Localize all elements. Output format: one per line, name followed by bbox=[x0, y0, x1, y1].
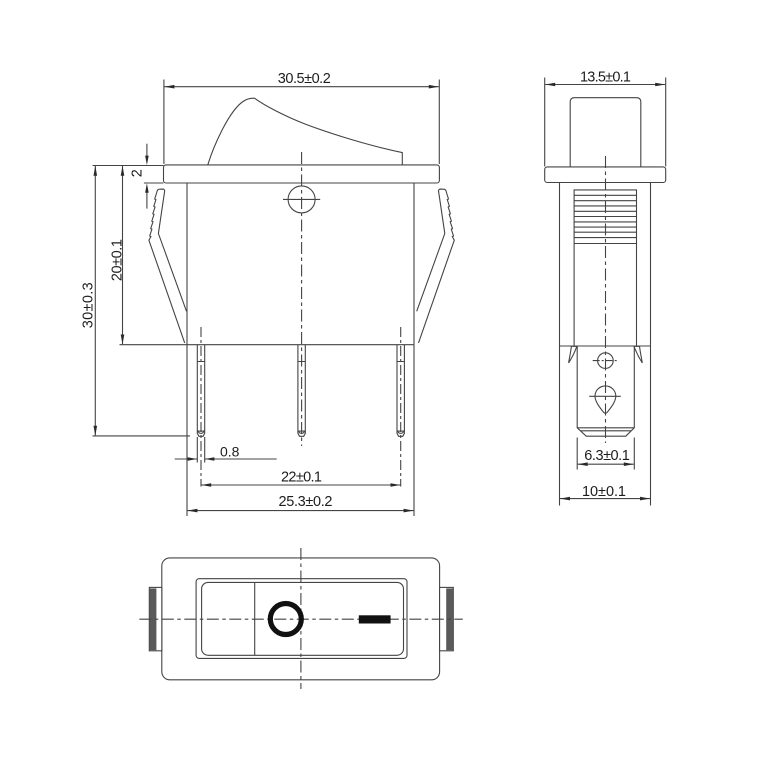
svg-text:6.3±0.1: 6.3±0.1 bbox=[584, 448, 630, 464]
svg-text:2: 2 bbox=[129, 169, 145, 177]
svg-text:25.3±0.2: 25.3±0.2 bbox=[279, 494, 333, 510]
svg-text:30.5±0.2: 30.5±0.2 bbox=[278, 71, 331, 87]
svg-text:20±0.1: 20±0.1 bbox=[110, 239, 126, 281]
svg-text:0.8: 0.8 bbox=[220, 444, 240, 460]
svg-text:22±0.1: 22±0.1 bbox=[281, 469, 322, 485]
svg-text:10±0.1: 10±0.1 bbox=[582, 484, 626, 500]
svg-text:13.5±0.1: 13.5±0.1 bbox=[580, 70, 631, 86]
svg-text:30±0.3: 30±0.3 bbox=[80, 282, 96, 328]
